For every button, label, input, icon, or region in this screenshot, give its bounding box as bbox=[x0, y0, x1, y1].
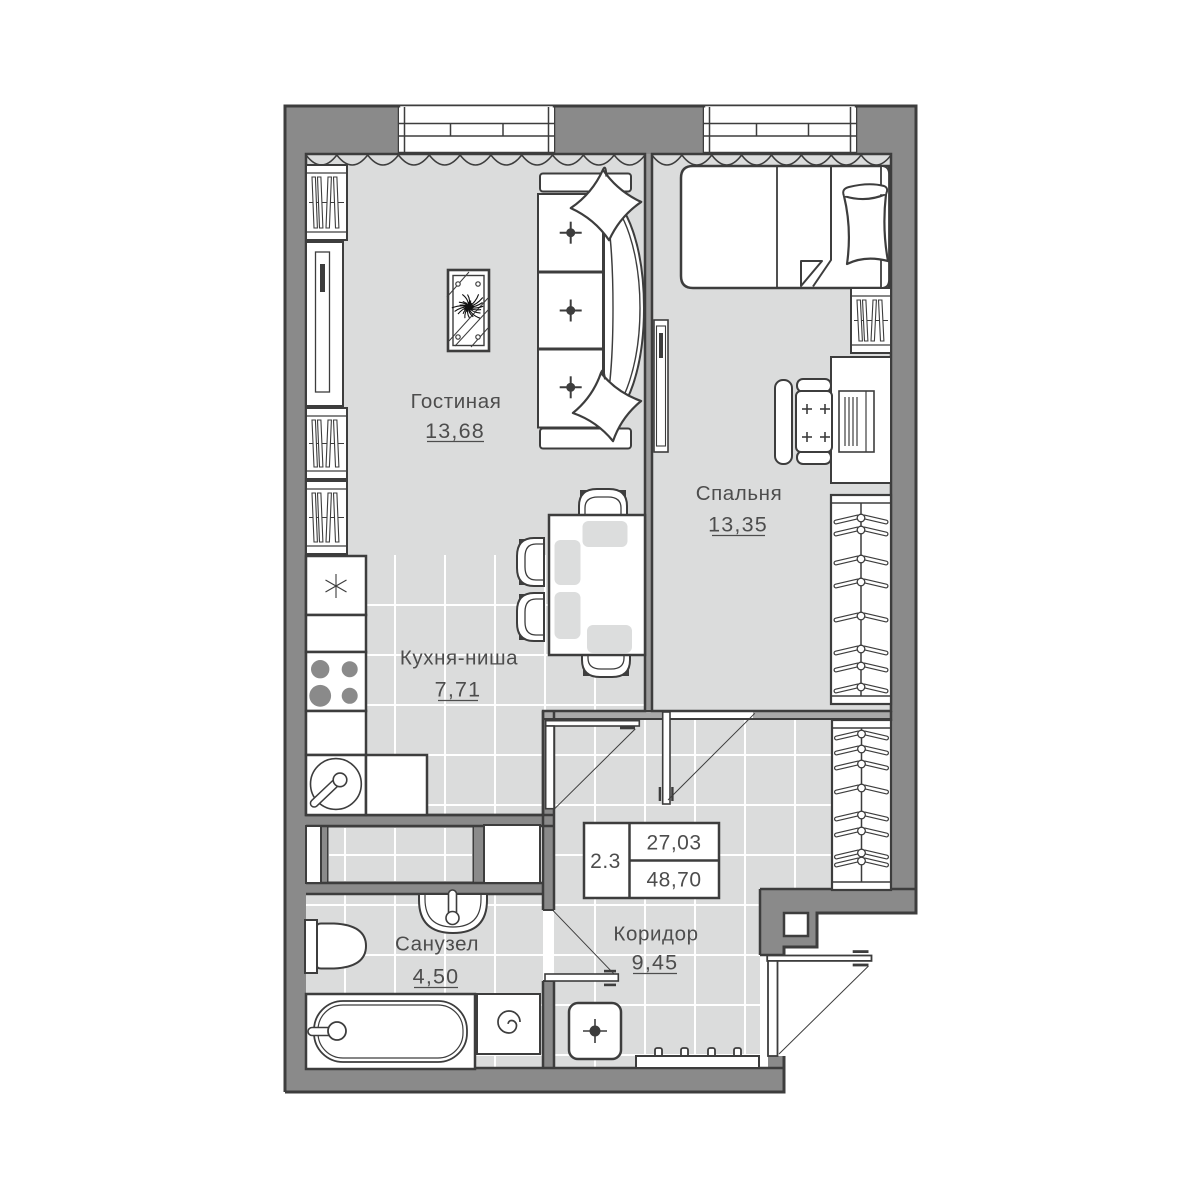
svg-text:7,71: 7,71 bbox=[435, 678, 482, 702]
svg-text:Спальня: Спальня bbox=[696, 482, 783, 505]
svg-text:9,45: 9,45 bbox=[632, 951, 679, 975]
svg-text:Коридор: Коридор bbox=[613, 923, 698, 946]
svg-text:13,68: 13,68 bbox=[425, 419, 485, 443]
svg-text:2.3: 2.3 bbox=[590, 850, 621, 873]
svg-text:Гостиная: Гостиная bbox=[411, 390, 502, 413]
svg-text:4,50: 4,50 bbox=[413, 965, 460, 989]
svg-text:27,03: 27,03 bbox=[646, 832, 701, 855]
svg-text:Кухня-ниша: Кухня-ниша bbox=[400, 647, 518, 670]
svg-text:Санузел: Санузел bbox=[395, 933, 479, 956]
svg-text:48,70: 48,70 bbox=[646, 869, 701, 892]
svg-text:13,35: 13,35 bbox=[708, 513, 768, 537]
